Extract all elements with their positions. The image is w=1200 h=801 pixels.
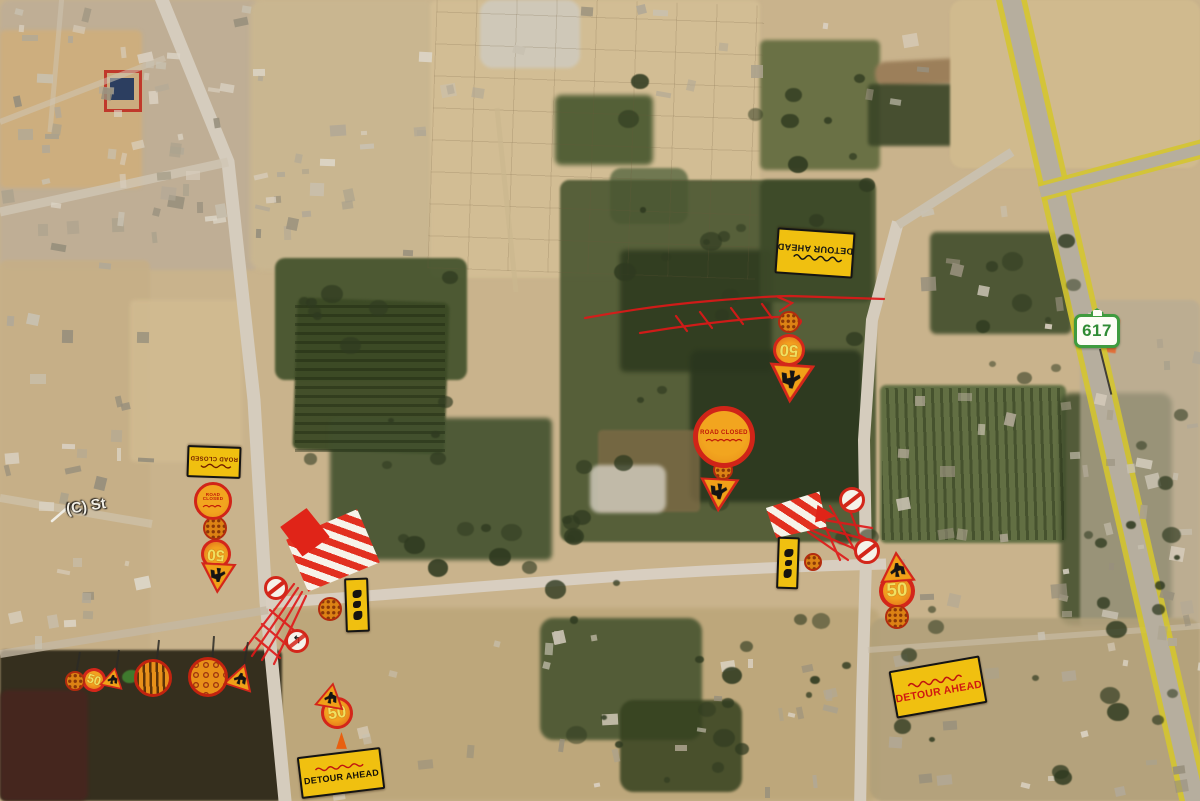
arabic-glyph <box>353 601 361 608</box>
arabic-glyph <box>784 548 793 556</box>
honeycomb-disc-icon[interactable] <box>188 657 228 697</box>
worker-triangle-icon[interactable] <box>199 562 237 595</box>
street-label: (C) St <box>65 495 107 518</box>
arabic-glyph <box>352 590 361 598</box>
route-shield-number: 617 <box>1074 314 1120 348</box>
vertical-detour-marker[interactable] <box>776 537 800 590</box>
worker-triangle-icon[interactable] <box>223 659 260 693</box>
speed-limit-50-sign[interactable]: 50 <box>772 333 806 367</box>
arabic-glyph <box>353 611 362 620</box>
road-closed-label: ROAD CLOSED <box>197 493 229 502</box>
dotted-disc-icon[interactable] <box>885 605 909 629</box>
no-left-turn-icon[interactable]: ↰ <box>285 629 309 653</box>
route-shield-tab <box>1091 308 1104 316</box>
detour-ahead-sign-south[interactable]: DETOUR AHEAD <box>297 747 385 799</box>
no-entry-icon[interactable] <box>854 538 880 564</box>
dotted-disc-icon[interactable] <box>778 311 800 333</box>
no-entry-icon[interactable] <box>264 576 288 600</box>
dotted-disc-icon[interactable] <box>318 597 342 621</box>
satellite-map[interactable]: DETOUR AHEAD ROAD CLOSED DETOUR AHEAD <box>0 0 1200 801</box>
worker-triangle-icon[interactable] <box>878 549 916 582</box>
vertical-detour-marker[interactable] <box>344 578 370 633</box>
striped-disc-icon[interactable] <box>134 659 172 697</box>
route-shield-pole <box>1099 349 1112 395</box>
arabic-glyph <box>783 568 791 577</box>
road-closed-sign-left[interactable]: ROAD CLOSED <box>186 445 241 479</box>
detour-ahead-sign-east[interactable]: DETOUR AHEAD <box>889 655 988 718</box>
no-entry-bar <box>266 580 286 596</box>
arabic-script-line <box>705 437 742 444</box>
arabic-glyph <box>784 559 791 565</box>
arabic-script-line <box>195 462 233 470</box>
worker-triangle-icon[interactable] <box>698 477 740 513</box>
dotted-disc-icon[interactable] <box>65 671 85 691</box>
arabic-script-line <box>202 503 225 510</box>
no-entry-bar <box>841 491 863 509</box>
road-closed-label: ROAD CLOSED <box>190 454 238 462</box>
no-entry-icon[interactable] <box>839 487 865 513</box>
cone-icon[interactable] <box>335 732 348 749</box>
route-shield-icon: 617 <box>1074 308 1120 348</box>
road-closed-label: ROAD CLOSED <box>700 430 748 436</box>
road-closed-sign[interactable]: ROAD CLOSED <box>194 482 232 520</box>
dotted-disc-icon[interactable] <box>804 553 822 571</box>
worker-triangle-icon[interactable] <box>767 363 816 406</box>
detour-ahead-sign-north[interactable]: DETOUR AHEAD <box>774 227 855 278</box>
road-closed-sign[interactable]: ROAD CLOSED <box>693 406 755 468</box>
no-entry-bar <box>856 542 878 560</box>
signage-layer: DETOUR AHEAD ROAD CLOSED DETOUR AHEAD <box>0 0 1200 801</box>
